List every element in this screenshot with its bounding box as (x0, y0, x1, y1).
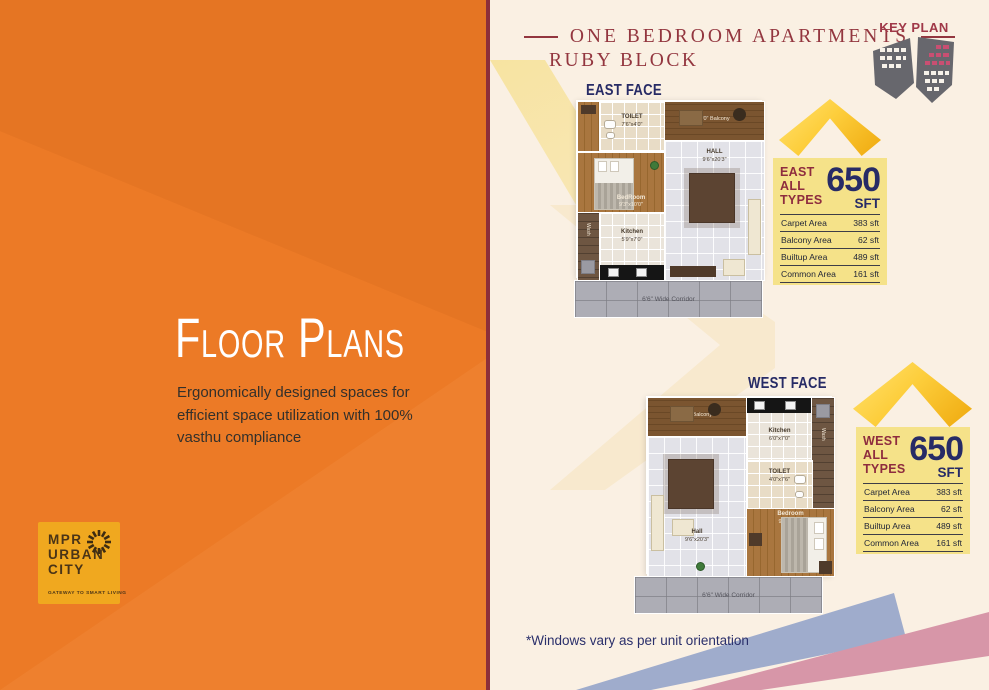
west-area-card: WEST ALL TYPES 650 SFT Carpet Area383 sf… (856, 427, 970, 554)
area-row: Common Area161 sft (863, 535, 963, 552)
heading-rule-left (524, 36, 558, 39)
key-plan: KEY PLAN (864, 20, 964, 110)
west-face-label: WEST FACE (748, 375, 827, 393)
armchair (723, 259, 745, 276)
left-panel: Floor Plans Ergonomically designed space… (0, 0, 486, 690)
area-row: Builtup Area489 sft (863, 518, 963, 535)
area-row: Carpet Area383 sft (780, 215, 880, 232)
west-floor-plan: 4'0" Balcony Kitchen 6'0"x7'0" Wash (646, 396, 832, 574)
east-area-card: EAST ALL TYPES 650 SFT Carpet Area383 sf… (773, 158, 887, 285)
section-title: ONE BEDROOM APARTMENTS (570, 26, 909, 48)
tv-unit (670, 266, 716, 277)
east-floor-plan: TOILET 7'6"x4'0" 4'0" Balcony (576, 100, 762, 278)
toilet-room: TOILET 7'6"x4'0" (599, 101, 665, 152)
wash-area: Wash (811, 397, 835, 509)
balcony-room: 4'0" Balcony (664, 101, 765, 141)
logo-text: CITY (48, 562, 120, 577)
balcony-chair (733, 108, 746, 121)
wardrobe (581, 105, 596, 114)
area-row: Builtup Area489 sft (780, 249, 880, 266)
east-area-value: 650 (826, 165, 880, 196)
sink (636, 268, 647, 277)
balcony-chair (708, 403, 721, 416)
dining-table (689, 173, 735, 223)
sofa (748, 199, 761, 255)
hall-room: HALL 9'6"x20'3" (664, 140, 765, 281)
stove (608, 268, 619, 277)
page-title: Floor Plans (175, 305, 405, 370)
content-panel: ONE BEDROOM APARTMENTS RUBY BLOCK KEY PL… (490, 0, 989, 690)
washer (816, 404, 830, 418)
area-row: Carpet Area383 sft (863, 484, 963, 501)
gold-chevron-west (853, 362, 972, 427)
hall-room: Hall 9'6"x20'3" (647, 436, 747, 577)
dining-table (668, 459, 714, 509)
wardrobe (749, 533, 762, 546)
brochure-page: Floor Plans Ergonomically designed space… (0, 0, 989, 690)
kitchen-room: Kitchen 6'0"x7'0" (746, 397, 813, 461)
corridor: 6'6" Wide Corridor (634, 576, 823, 614)
kitchen-room: Kitchen 5'9"x7'0" (599, 212, 665, 281)
balcony-room: 4'0" Balcony (647, 397, 747, 437)
sink (754, 401, 765, 410)
description-text: Ergonomically designed spaces for effici… (177, 382, 417, 450)
footnote: *Windows vary as per unit orientation (526, 633, 749, 648)
plant (650, 161, 659, 170)
east-block-name: EAST ALL TYPES (780, 165, 823, 207)
toilet-fixture (604, 120, 616, 129)
sink-fixture (795, 491, 804, 498)
area-row: Balcony Area62 sft (780, 232, 880, 249)
corridor: 6'6" Wide Corridor (574, 280, 763, 318)
washer (581, 260, 595, 274)
bedroom-room: Bedroom 9'3"x10'0" (746, 508, 835, 577)
bedroom-room: BedRoom 9'3"x10'0" (577, 152, 665, 213)
key-plan-label: KEY PLAN (864, 20, 964, 35)
balcony-seat (670, 406, 694, 422)
mpr-logo: MPR URBAN CITY GATEWAY TO SMART LIVING (38, 522, 120, 604)
key-plan-map-icon (870, 35, 958, 105)
area-row: Balcony Area62 sft (863, 501, 963, 518)
block-subtitle: RUBY BLOCK (549, 50, 698, 72)
stove (785, 401, 796, 410)
sink-fixture (606, 132, 615, 139)
west-area-value: 650 (909, 434, 963, 465)
west-block-name: WEST ALL TYPES (863, 434, 906, 476)
bedroom-upper-strip (577, 101, 600, 152)
balcony-seat (679, 110, 703, 126)
toilet-fixture (794, 475, 806, 484)
wardrobe (819, 561, 832, 574)
east-face-label: EAST FACE (586, 82, 662, 100)
toilet-room: TOILET 4'0"x7'6" (746, 460, 813, 510)
area-row: Common Area161 sft (780, 266, 880, 283)
sunburst-icon (86, 529, 112, 555)
logo-tagline: GATEWAY TO SMART LIVING (48, 591, 127, 596)
plant (696, 562, 705, 571)
wash-area: Wash (577, 212, 600, 281)
